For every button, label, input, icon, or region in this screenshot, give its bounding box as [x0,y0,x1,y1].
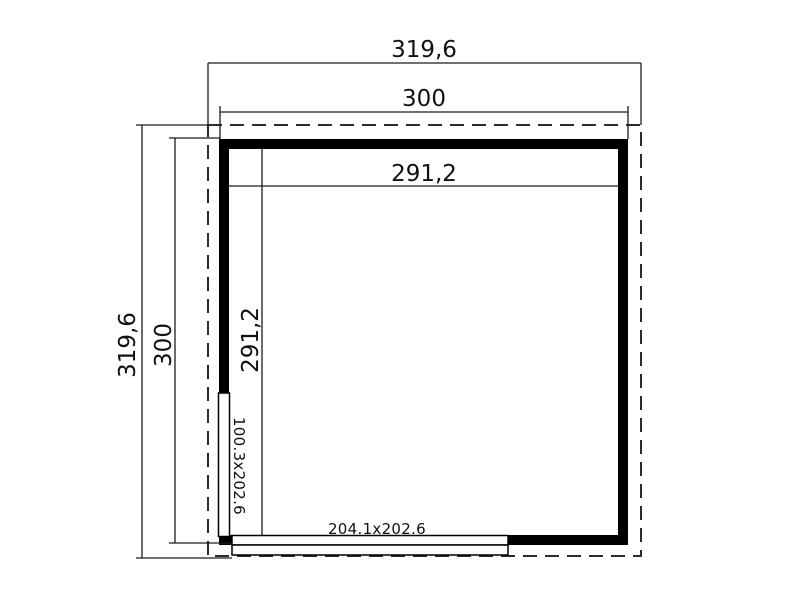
dim-label-left-wall: 300 [151,323,177,367]
canvas-background [0,0,800,600]
front-door-outer-leaf [232,545,508,555]
door-label-side-door: 100.3x202.6 [230,417,248,515]
dim-label-top-wall: 300 [402,86,446,112]
floor-plan-page: 319,6 300 291,2 319,6 300 291,2 100.3x20… [0,0,800,600]
dim-label-top-outer: 319,6 [391,37,457,63]
floor-plan-svg: 319,6 300 291,2 319,6 300 291,2 100.3x20… [0,0,800,600]
door-label-front-door: 204.1x202.6 [328,520,426,538]
side-door [219,393,230,537]
dim-label-interior-height: 291,2 [238,307,264,373]
dim-label-interior-width: 291,2 [391,161,457,187]
dim-label-left-outer: 319,6 [115,312,141,378]
